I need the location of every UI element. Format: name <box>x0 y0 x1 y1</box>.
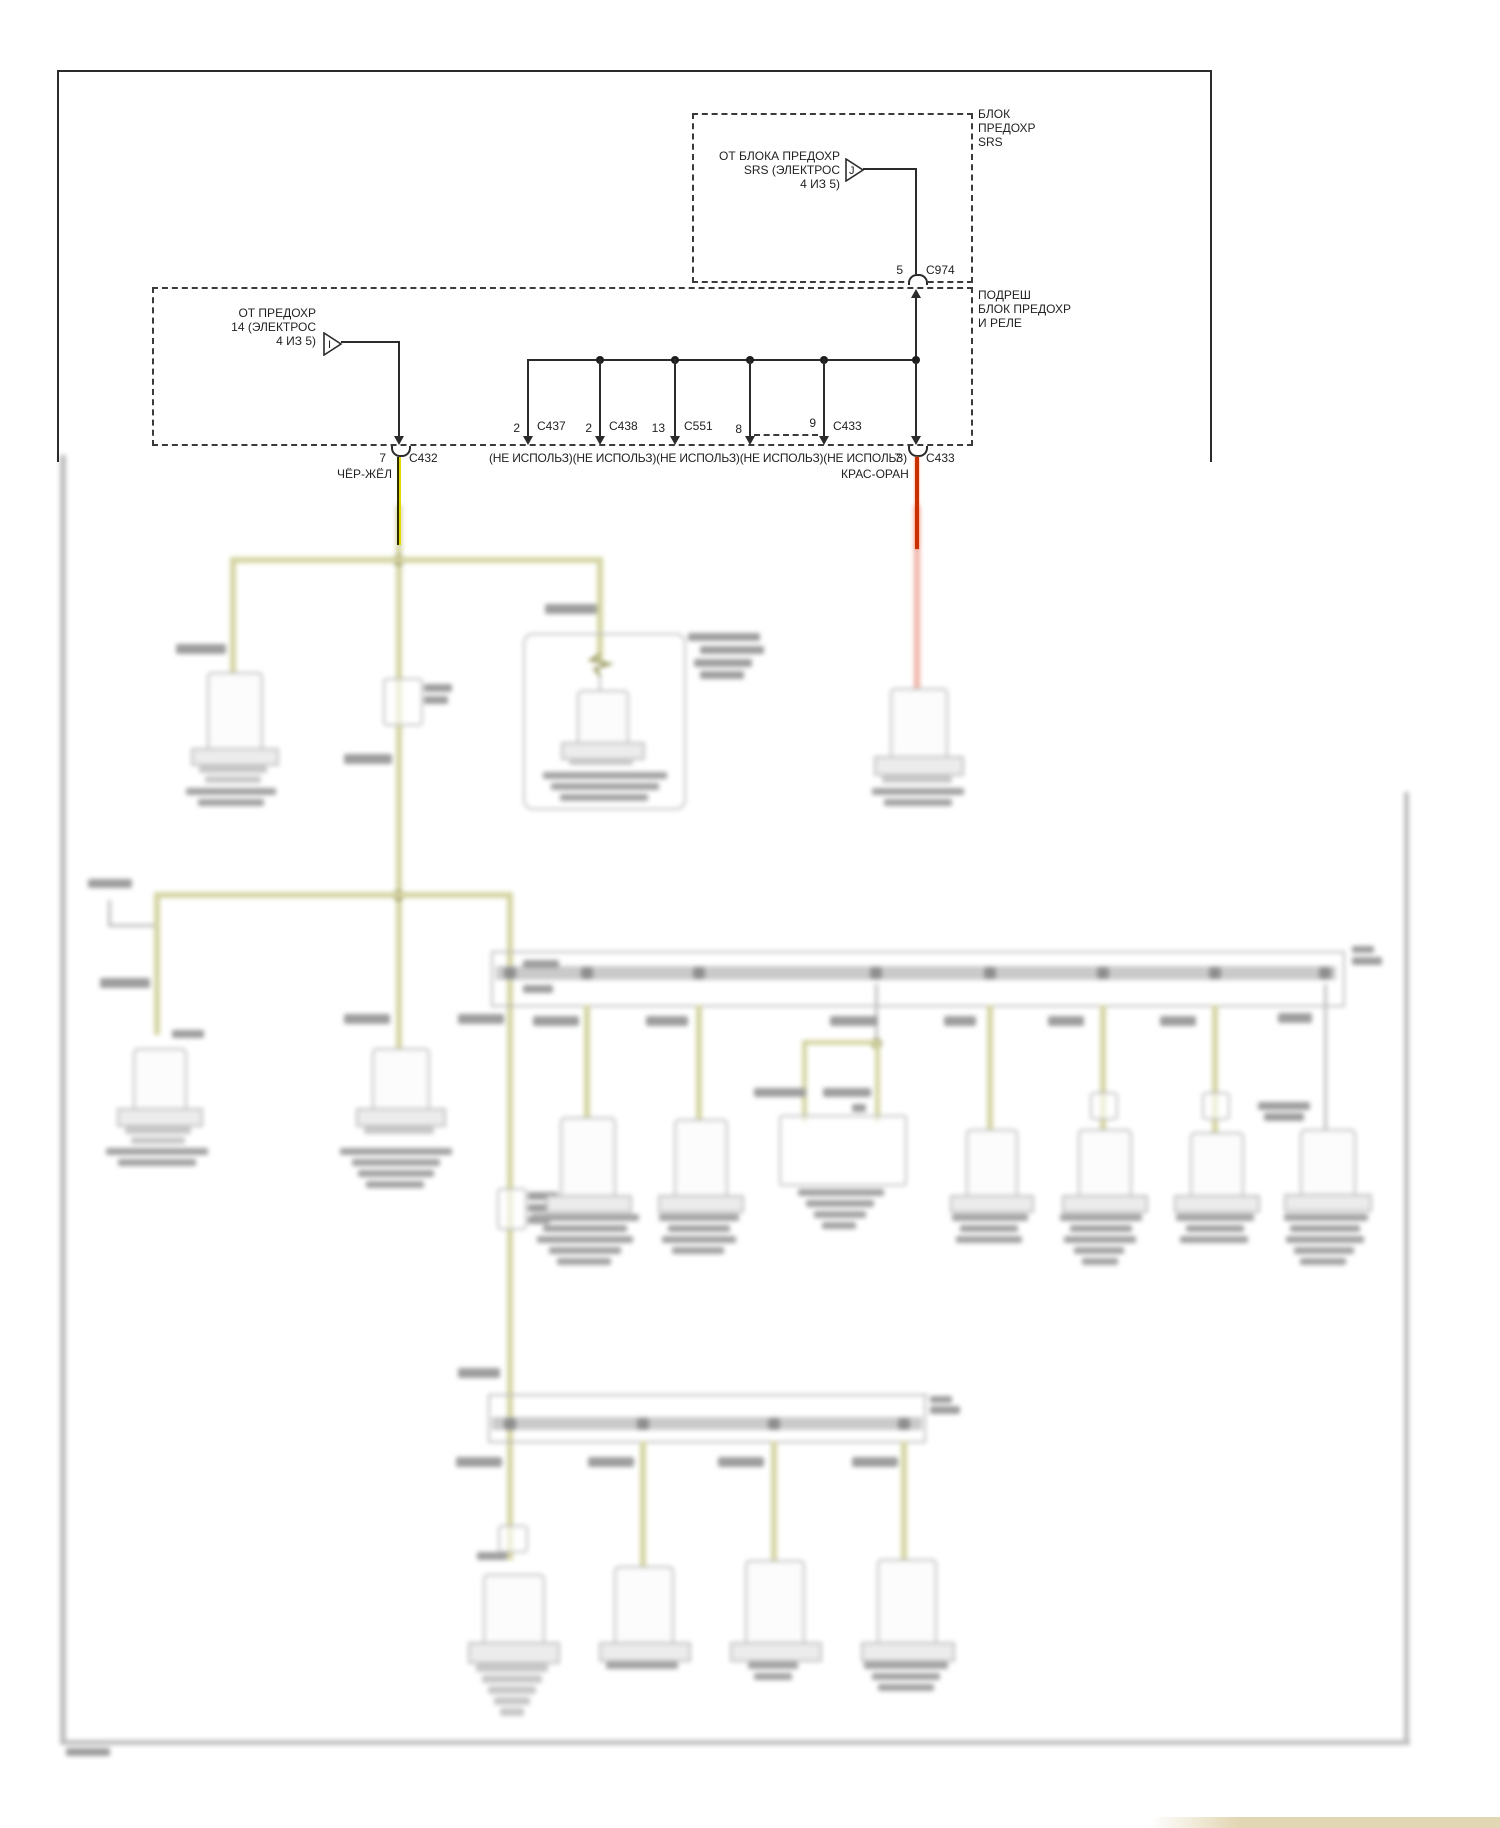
splice-label <box>930 1406 960 1414</box>
connector-base <box>599 1642 691 1662</box>
connector-caption <box>549 1247 621 1254</box>
connector-hatch <box>500 1708 524 1716</box>
connector-caption <box>557 1258 611 1265</box>
connector-caption <box>340 1148 452 1155</box>
wire-branch-left-1 <box>230 557 236 675</box>
connector-symbol <box>372 1048 430 1112</box>
wire-color-label <box>458 1368 500 1378</box>
wire-color-label <box>823 1088 871 1097</box>
wire-color-label <box>718 1457 764 1467</box>
arrow-down-icon <box>523 436 533 445</box>
trunk3-cap-left <box>491 951 493 1007</box>
wire-color-label <box>458 1014 504 1024</box>
inline-connector-label <box>477 1552 507 1560</box>
wire-c974-v <box>915 168 917 274</box>
connector-hatch <box>569 758 633 765</box>
wire-color-label <box>1278 1013 1312 1023</box>
connector-pin-label <box>1258 1102 1310 1110</box>
wire-color-label <box>646 1016 688 1026</box>
trunk4-outline-bottom <box>488 1441 925 1443</box>
connector-hatch <box>205 776 261 783</box>
page-border-right <box>1210 70 1212 462</box>
connector-caption <box>551 783 659 790</box>
connector-c974-symbol <box>908 274 928 285</box>
wire-red-orange-crisp <box>915 457 919 549</box>
connector-caption <box>1070 1225 1132 1232</box>
connector-caption <box>543 1225 627 1232</box>
inline-connector-label <box>424 684 452 692</box>
ground-bus-1 <box>230 557 603 563</box>
wire-c432-h <box>341 341 399 343</box>
connector-symbol <box>890 688 948 760</box>
connector-caption <box>1060 1214 1142 1221</box>
trunk-junction <box>984 967 996 979</box>
wire-black-yellow-crisp <box>397 457 401 545</box>
connector-caption <box>531 1214 639 1221</box>
splice-label <box>1352 957 1382 965</box>
trunk3-drop <box>696 1005 702 1121</box>
connector-caption <box>1176 1214 1254 1221</box>
drop-c438-pin: 2 <box>568 421 592 435</box>
connector-caption <box>1180 1236 1248 1243</box>
connector-symbol <box>133 1048 187 1112</box>
connector-c974-name: C974 <box>926 263 955 277</box>
stub-wire <box>108 924 156 927</box>
trunk4-drop <box>771 1441 777 1562</box>
connector-caption <box>878 1684 934 1691</box>
trunk4-cap-right <box>924 1394 926 1443</box>
connector-caption <box>1064 1236 1136 1243</box>
arrow-down-icon <box>911 436 921 445</box>
pin-label <box>852 1104 866 1112</box>
connector-hatch <box>482 1675 542 1683</box>
connector-c974-pin: 5 <box>865 263 903 277</box>
page-border-left-faded <box>60 455 66 1745</box>
arrow-down-icon <box>394 436 404 445</box>
connector-caption <box>1294 1247 1354 1254</box>
wire-color-label <box>754 1088 806 1097</box>
page-border-right-faded <box>1404 792 1409 1742</box>
connector-caption <box>198 799 264 806</box>
connector-c432-pin: 7 <box>362 451 386 465</box>
connector-c432-name: C432 <box>409 451 438 465</box>
connector-caption <box>814 1211 866 1218</box>
connector-caption <box>952 1214 1028 1221</box>
drop-c551-pin: 13 <box>641 421 665 435</box>
connector-caption <box>543 772 667 779</box>
drop-c438 <box>599 359 601 436</box>
trunk-junction <box>768 1418 780 1430</box>
loop-wire-left <box>802 1040 807 1122</box>
connector-caption <box>537 1236 633 1243</box>
internal-bus <box>528 359 918 361</box>
wire-black-yellow-main <box>396 505 402 1050</box>
stub-label <box>88 879 132 888</box>
connector-caption <box>956 1236 1022 1243</box>
connector-pin-label <box>1264 1113 1304 1121</box>
inline-connector <box>498 1525 528 1553</box>
srs-fuse-box-label: БЛОК ПРЕДОХР SRS <box>978 107 1068 149</box>
connector-hatch <box>882 776 952 783</box>
inline-connector <box>383 678 423 726</box>
connector-base <box>546 1195 632 1213</box>
loop-wire-right <box>875 1040 880 1122</box>
drop-c551-name: C551 <box>684 419 713 433</box>
feed-triangle-i: I <box>323 332 343 356</box>
wire-color-label <box>533 1016 579 1026</box>
wiring-diagram-page: БЛОК ПРЕДОХР SRS J ОТ БЛОКА ПРЕДОХР SRS … <box>0 0 1500 1828</box>
connector-hatch <box>476 1664 548 1672</box>
connector-caption <box>662 1236 736 1243</box>
trunk-junction <box>581 967 593 979</box>
connector-caption <box>884 799 952 806</box>
connector-symbol <box>614 1566 674 1646</box>
connector-hatch <box>131 1137 185 1144</box>
connector-symbol <box>207 672 263 752</box>
connector-caption <box>659 1214 739 1221</box>
relay-box <box>779 1115 907 1186</box>
splice-label <box>523 960 559 968</box>
wire-color-label <box>456 1457 502 1467</box>
wire-color-label <box>852 1457 898 1467</box>
stub-wire <box>108 900 111 927</box>
wire-c974-h <box>863 168 916 170</box>
connector-symbol <box>577 690 629 746</box>
arrow-down-icon <box>670 436 680 445</box>
wire-color-label <box>344 754 392 764</box>
connector-base <box>658 1195 744 1213</box>
connector-pin-label <box>172 1030 204 1038</box>
inline-connector-label <box>424 696 448 704</box>
connector-caption <box>352 1159 440 1166</box>
wire-color-label <box>176 644 226 654</box>
relay-drop-wire <box>875 984 878 1044</box>
wire-color-label <box>588 1457 634 1467</box>
connector-symbol <box>745 1560 805 1646</box>
wire-zigzag <box>588 654 614 678</box>
trunk-junction <box>1319 967 1331 979</box>
underhood-box-label: ПОДРЕШ БЛОК ПРЕДОХР И РЕЛЕ <box>978 288 1098 330</box>
component-label <box>700 646 764 654</box>
trunk4-drop <box>640 1441 646 1568</box>
feed-triangle-j: J <box>845 158 865 182</box>
wire-color-label <box>1048 1016 1084 1026</box>
trunk-junction <box>504 1418 516 1430</box>
connector-base <box>874 756 964 776</box>
pin8-pin9-link <box>754 434 818 436</box>
splice-label <box>930 1396 952 1403</box>
connector-caption <box>606 1662 678 1669</box>
drop-pin8 <box>749 359 751 436</box>
connector-caption <box>1074 1247 1124 1254</box>
drop-c437 <box>527 359 529 436</box>
trunk-junction <box>870 967 882 979</box>
connector-symbol <box>483 1574 545 1646</box>
inline-connector <box>1202 1092 1230 1120</box>
connector-caption <box>754 1673 792 1680</box>
page-border-top <box>57 70 1212 72</box>
trunk3-cap-right <box>1343 951 1345 1007</box>
wire-color-label <box>944 1016 976 1026</box>
trunk4-busbar <box>492 1417 922 1430</box>
connector-caption <box>806 1200 874 1207</box>
arrow-down-icon <box>819 436 829 445</box>
trunk4-outline-top <box>488 1394 928 1396</box>
connector-hatch <box>364 1127 434 1134</box>
connector-caption <box>560 794 648 801</box>
connector-base <box>1062 1195 1148 1213</box>
srs-source-label: ОТ БЛОКА ПРЕДОХР SRS (ЭЛЕКТРОС 4 ИЗ 5) <box>640 149 840 191</box>
trunk-junction <box>898 1418 910 1430</box>
component-label <box>688 633 760 641</box>
connector-base <box>950 1195 1034 1213</box>
drop-c437-pin: 2 <box>496 421 520 435</box>
connector-caption <box>872 788 964 795</box>
drop-c433-out <box>915 361 917 436</box>
connector-symbol <box>966 1129 1018 1199</box>
trunk-junction <box>1209 967 1221 979</box>
splice-label <box>1352 946 1374 953</box>
wire-color-label <box>344 1014 390 1024</box>
trunk3-drop-gray <box>1324 984 1327 1131</box>
fuse14-source-label: ОТ ПРЕДОХР 14 (ЭЛЕКТРОС 4 ИЗ 5) <box>120 306 316 348</box>
wire-branch-left-2 <box>154 892 160 1035</box>
connector-hatch <box>199 766 267 773</box>
wire-color-label <box>830 1016 878 1026</box>
ground-bus-2 <box>154 892 513 898</box>
feed-triangle-i-letter: I <box>328 339 331 351</box>
trunk3-drop <box>584 1005 590 1117</box>
connector-caption <box>748 1662 798 1669</box>
page-footer-code <box>66 1748 110 1756</box>
connector-caption <box>1082 1258 1118 1265</box>
connector-symbol <box>674 1119 728 1199</box>
drop-c551 <box>674 359 676 436</box>
drop-pin9-c433 <box>823 359 825 436</box>
scan-edge-strip <box>1150 1817 1500 1828</box>
connector-caption <box>668 1225 730 1232</box>
arrow-down-icon <box>745 436 755 445</box>
arrow-down-icon <box>595 436 605 445</box>
connector-symbol <box>1190 1132 1244 1199</box>
drop-pin9-name: C433 <box>833 419 862 433</box>
connector-c433-name: C433 <box>926 451 955 465</box>
connector-symbol <box>1078 1129 1132 1199</box>
trunk3-outline-top <box>491 951 1345 953</box>
connector-symbol <box>1300 1129 1356 1198</box>
drop-pin8-label: 8 <box>718 422 742 436</box>
connector-base <box>861 1642 955 1662</box>
loop-wire-top <box>802 1040 880 1045</box>
trunk-junction <box>1097 967 1109 979</box>
connector-c433-pin: 7 <box>877 451 901 465</box>
splice-label <box>523 985 553 993</box>
wire-label-black-yellow: ЧЁР-ЖЁЛ <box>337 467 392 481</box>
wire-color-label <box>1160 1016 1196 1026</box>
trunk-junction <box>693 967 705 979</box>
trunk3-drop <box>987 1005 993 1131</box>
connector-caption <box>1290 1225 1360 1232</box>
connector-caption <box>1300 1258 1346 1265</box>
page-border-left <box>57 70 59 462</box>
connector-caption <box>186 788 276 795</box>
wire-label-red-orange: КРАС-ОРАН <box>841 467 909 481</box>
component-label <box>700 671 744 679</box>
connector-caption <box>872 1673 940 1680</box>
connector-base <box>117 1108 203 1127</box>
drop-c437-name: C437 <box>537 419 566 433</box>
wire-c432-v <box>398 341 400 436</box>
inline-connector <box>1090 1092 1118 1120</box>
trunk4-drop <box>901 1441 907 1561</box>
connector-base <box>1174 1195 1260 1213</box>
connector-base <box>468 1642 560 1664</box>
connector-base <box>730 1642 822 1662</box>
connector-caption <box>358 1170 434 1177</box>
connector-hatch <box>125 1127 191 1134</box>
connector-caption <box>864 1662 948 1669</box>
connector-caption <box>366 1181 424 1188</box>
connector-caption <box>1286 1236 1364 1243</box>
inline-connector <box>497 1188 527 1230</box>
trunk4-cap-left <box>488 1394 490 1443</box>
connector-caption <box>798 1189 884 1196</box>
connector-hatch <box>494 1697 530 1705</box>
connector-caption <box>672 1247 724 1254</box>
connector-symbol <box>560 1117 616 1199</box>
connector-caption <box>960 1225 1018 1232</box>
trunk-junction <box>637 1418 649 1430</box>
connector-symbol <box>877 1559 937 1646</box>
drop-c438-name: C438 <box>609 419 638 433</box>
connector-caption <box>1186 1225 1244 1232</box>
wire-color-label <box>100 978 150 988</box>
page-border-bottom-faded <box>60 1740 1410 1745</box>
trunk-junction <box>504 967 516 979</box>
feed-triangle-j-letter: J <box>849 165 855 177</box>
connector-caption <box>822 1222 856 1229</box>
connector-caption <box>106 1148 208 1155</box>
connector-caption <box>118 1159 196 1166</box>
connector-hatch <box>488 1686 536 1694</box>
srs-fuse-box <box>692 113 973 283</box>
connector-caption <box>1284 1214 1368 1221</box>
connector-base <box>191 748 279 766</box>
not-used-row: (НЕ ИСПОЛЬЗ)(НЕ ИСПОЛЬЗ)(НЕ ИСПОЛЬЗ)(НЕ … <box>489 451 907 465</box>
connector-base <box>1284 1194 1372 1212</box>
drop-pin9-label: 9 <box>792 416 816 430</box>
component-label <box>694 659 752 667</box>
connector-base <box>356 1108 446 1127</box>
wire-color-label <box>545 604 597 614</box>
